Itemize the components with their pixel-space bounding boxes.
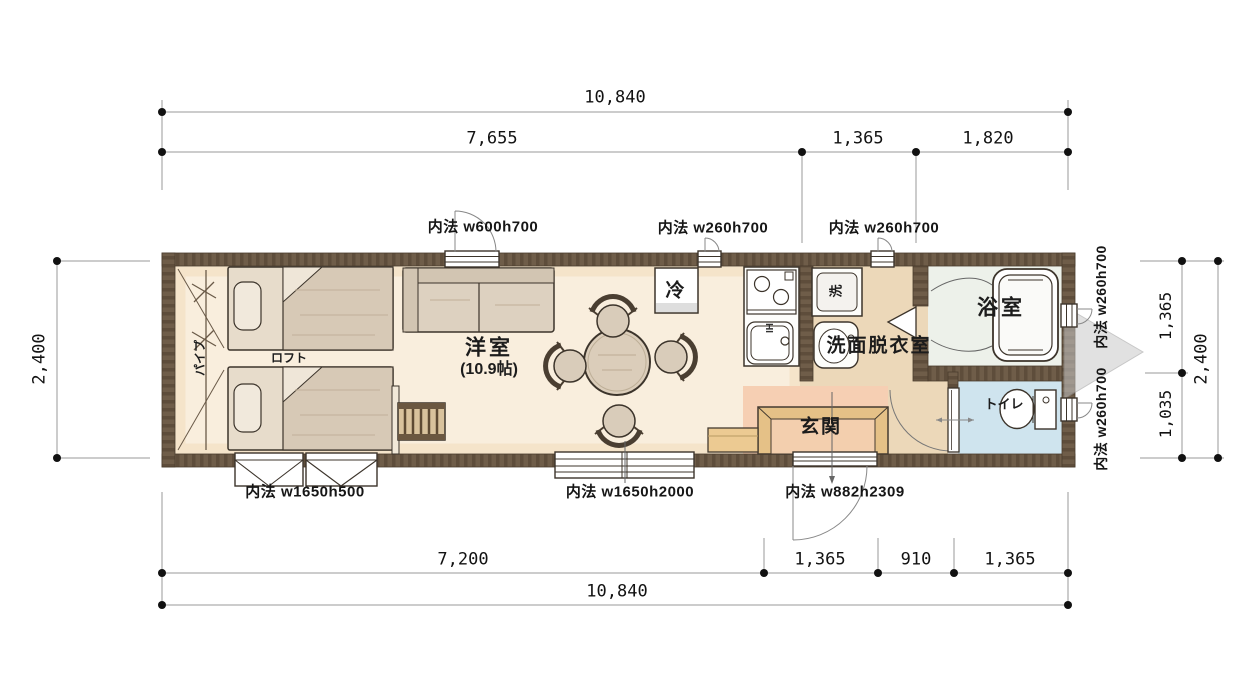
label-living-size: (10.9帖) [460,362,518,378]
bed-lower [228,367,393,450]
dim-right-1035: 1,035 [1158,390,1174,438]
label-window-w260h700-washroom: 内法 w260h700 [829,221,940,236]
dim-bottom-7200: 7,200 [437,552,488,569]
label-washer: 洗 [830,284,843,297]
dim-top-1820: 1,820 [962,131,1013,148]
label-loft: ロフト [271,352,307,364]
dim-bottom-910: 910 [901,552,932,569]
label-window-w1650h500: 内法 w1650h500 [245,485,364,500]
label-door-w882h2309: 内法 w882h2309 [785,485,904,500]
dim-top-7655: 7,655 [466,131,517,148]
label-toilet: トイレ [984,398,1023,411]
dim-bottom-1365b: 1,365 [984,552,1035,569]
kitchen-counter [744,267,799,366]
dim-right-2400: 2,400 [1194,333,1211,384]
label-pipe: パイプ [194,340,206,376]
dim-left-2400: 2,400 [32,333,49,384]
label-window-w1650h2000: 内法 w1650h2000 [566,485,694,500]
label-refrigerator: 冷 [665,282,686,301]
label-window-w260h700-kitchen: 内法 w260h700 [658,221,769,236]
label-washroom: 洗面脱衣室 [826,337,931,356]
label-living-room: 洋室 [465,338,513,359]
bed-upper [228,267,393,350]
label-window-w260h700-bath: 内法 w260h700 [1094,245,1108,349]
dim-bottom-1365a: 1,365 [794,552,845,569]
dim-top-overall: 10,840 [584,90,645,107]
dim-top-1365: 1,365 [832,131,883,148]
label-bathroom: 浴室 [977,298,1025,319]
label-window-w260h700-toilet: 内法 w260h700 [1094,367,1108,471]
label-ih-stove: IH [766,323,776,333]
label-window-w600h700: 内法 w600h700 [428,220,539,235]
dim-right-1365: 1,365 [1158,292,1174,340]
floor-plan-page: 10,840 7,655 1,365 1,820 7,200 1,365 910… [0,0,1260,700]
label-entrance: 玄関 [800,418,842,437]
dim-bottom-overall: 10,840 [586,584,647,601]
sofa [403,268,554,332]
